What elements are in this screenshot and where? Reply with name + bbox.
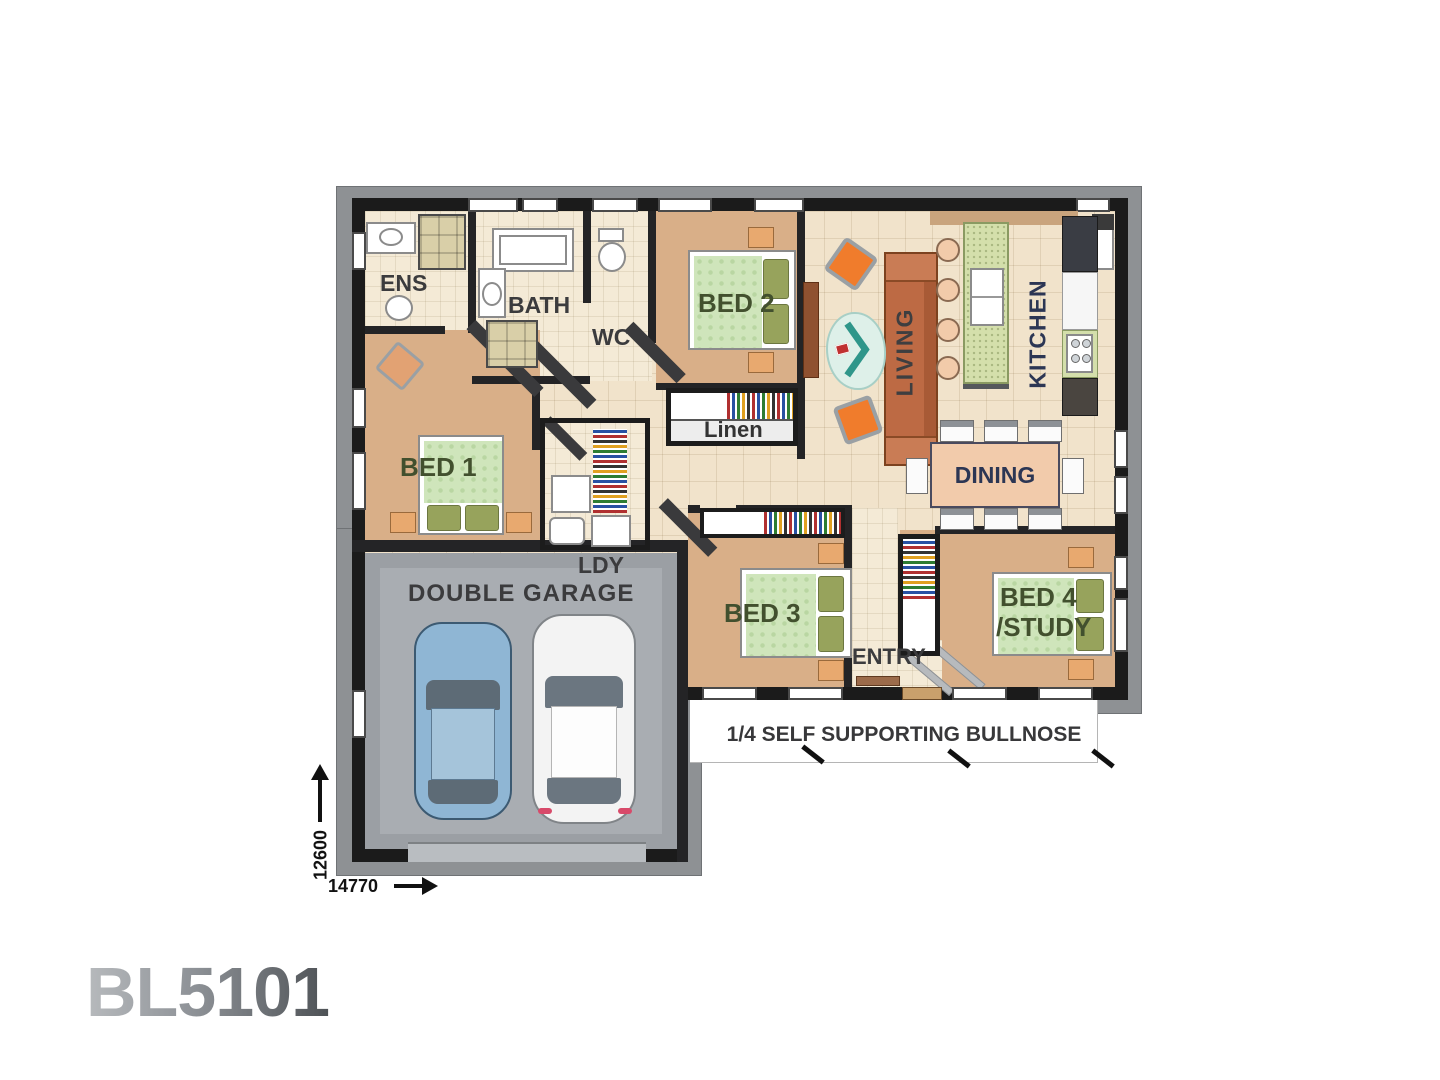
bed4-pillow-1 <box>1076 579 1104 613</box>
wall-garage-right <box>677 552 688 862</box>
wc-toilet <box>598 242 626 272</box>
dining-chair-bottom-1 <box>940 508 974 530</box>
window-top-bath-2 <box>522 198 558 212</box>
bed1-pillow-2 <box>465 505 499 531</box>
bed3-robe <box>700 508 845 538</box>
car-blue-roof <box>431 708 495 780</box>
label-linen: Linen <box>704 417 763 443</box>
wc-cistern <box>598 228 624 242</box>
ens-basin <box>379 228 403 246</box>
bath-basin <box>482 282 502 306</box>
bed1-side-table-left <box>390 512 416 533</box>
label-wc: WC <box>592 324 630 351</box>
front-door-step <box>902 687 942 700</box>
wall-bed1-right <box>532 388 540 450</box>
wall-bath-wc-divider <box>583 211 591 303</box>
depth-dimension: 12600 <box>311 830 332 880</box>
bed1-robe-clothes <box>593 429 627 513</box>
plan-code: BL5101 <box>86 952 329 1032</box>
kitchen-stool-2 <box>936 278 960 302</box>
label-garage: DOUBLE GARAGE <box>408 580 634 608</box>
sofa-back <box>924 282 936 436</box>
ens-toilet <box>385 295 413 321</box>
wall-ens-right <box>468 211 476 333</box>
car-blue-windshield <box>426 680 500 710</box>
bed2-robe-clothes <box>727 393 793 419</box>
cooktop <box>1066 334 1093 373</box>
bed1-robe <box>540 418 650 550</box>
label-kitchen: KITCHEN <box>1025 279 1052 388</box>
bed3-pillow-1 <box>818 576 844 612</box>
burner-2 <box>1082 339 1091 348</box>
car-white <box>532 614 636 824</box>
car-blue-rear-window <box>428 780 498 804</box>
window-right-bed4-1 <box>1114 556 1128 590</box>
label-bed2: BED 2 <box>698 288 775 319</box>
rug <box>826 312 886 390</box>
dining-chair-right <box>1062 458 1084 494</box>
dining-chair-bottom-2 <box>984 508 1018 530</box>
depth-arrow-shaft <box>318 778 322 822</box>
window-top-kitchen <box>1076 198 1110 212</box>
bed1-frame <box>418 435 504 535</box>
window-top-bed2-1 <box>658 198 712 212</box>
bed3-pillow-2 <box>818 616 844 652</box>
bed4-side-table-top <box>1068 547 1094 568</box>
bed3-side-table-bottom <box>818 660 844 681</box>
bed4-robe-clothes <box>903 539 935 599</box>
window-right-bed4-2 <box>1114 598 1128 652</box>
label-dining: DINING <box>930 460 1060 490</box>
car-blue <box>414 622 512 820</box>
kitchen-stool-1 <box>936 238 960 262</box>
dining-chair-top-2 <box>984 420 1018 442</box>
window-left-ens <box>352 232 366 270</box>
width-arrow-shaft <box>394 884 422 888</box>
window-top-bath-1 <box>468 198 518 212</box>
kitchen-cabinet <box>1062 378 1098 416</box>
sofa-arm-top <box>886 254 936 282</box>
burner-4 <box>1082 354 1091 363</box>
garage-door-opening <box>408 842 646 862</box>
kitchen-stool-3 <box>936 318 960 342</box>
window-bottom-bed3-2 <box>788 687 843 700</box>
window-top-wc <box>592 198 638 212</box>
dining-chair-bottom-3 <box>1028 508 1062 530</box>
label-ens: ENS <box>380 270 427 297</box>
width-dimension: 14770 <box>328 876 378 897</box>
burner-3 <box>1071 354 1080 363</box>
label-bed1: BED 1 <box>400 452 477 483</box>
label-living: LIVING <box>892 308 919 397</box>
bed1-side-table-right <box>506 512 532 533</box>
book-on-rug <box>835 342 850 355</box>
bed4-side-table-bottom <box>1068 659 1094 680</box>
label-bed4-line1: BED 4 <box>1000 582 1077 613</box>
label-laundry: LDY <box>578 552 624 579</box>
burner-1 <box>1071 339 1080 348</box>
car-white-tail-light-left <box>538 808 552 814</box>
dining-chair-left <box>906 458 928 494</box>
wall-bed3-top-left <box>688 505 700 513</box>
kitchen-bench <box>1062 272 1098 330</box>
island-sink <box>970 268 1004 326</box>
fridge <box>1062 216 1098 272</box>
window-right-dining-1 <box>1114 430 1128 468</box>
label-bed3: BED 3 <box>724 598 801 629</box>
bath-shower <box>486 320 538 368</box>
cooktop-bench <box>1062 330 1098 378</box>
bed1-pillow-1 <box>427 505 461 531</box>
tv-unit <box>803 282 819 378</box>
bed2-side-table-top <box>748 227 774 248</box>
ens-shower <box>418 214 466 270</box>
label-bed4-line2: /STUDY <box>996 612 1091 643</box>
wall-bed2-left <box>648 211 656 343</box>
window-bottom-bed4-2 <box>1038 687 1093 700</box>
window-right-dining-2 <box>1114 476 1128 514</box>
bed3-side-table-top <box>818 543 844 564</box>
car-white-tail-light-right <box>618 808 632 814</box>
island-sink-divider <box>972 296 1002 298</box>
bed4-robe <box>898 534 940 656</box>
bed2-side-table-bottom <box>748 352 774 373</box>
dining-chair-top-1 <box>940 420 974 442</box>
window-left-garage <box>352 690 366 738</box>
kitchen-island <box>963 222 1009 384</box>
dining-chair-top-3 <box>1028 420 1062 442</box>
depth-arrow-head <box>311 764 329 780</box>
car-white-rear-window <box>547 778 621 804</box>
bed1-robe-shelf <box>551 475 591 513</box>
car-white-windshield <box>545 676 623 708</box>
entry-mat <box>856 676 900 686</box>
car-white-roof <box>551 706 617 778</box>
window-bottom-bed4-1 <box>952 687 1007 700</box>
veranda-annotation: 1/4 SELF SUPPORTING BULLNOSE <box>698 722 1110 748</box>
label-entry: ENTRY <box>852 644 926 670</box>
width-arrow-head <box>422 877 438 895</box>
window-top-bed2-2 <box>754 198 804 212</box>
bathtub-inner <box>499 235 567 265</box>
wall-ens-bottom <box>365 326 445 334</box>
washing-machine <box>591 515 631 547</box>
window-left-bed1-2 <box>352 452 366 510</box>
label-bath: BATH <box>508 292 570 319</box>
window-bottom-bed3-1 <box>702 687 757 700</box>
floor-plan-page: ENS BATH WC BED 2 Linen BED 1 LIVING KIT… <box>0 0 1440 1080</box>
bed3-robe-clothes <box>764 512 841 534</box>
window-left-bed1-1 <box>352 388 366 428</box>
laundry-tub <box>549 517 585 545</box>
kitchen-stool-4 <box>936 356 960 380</box>
